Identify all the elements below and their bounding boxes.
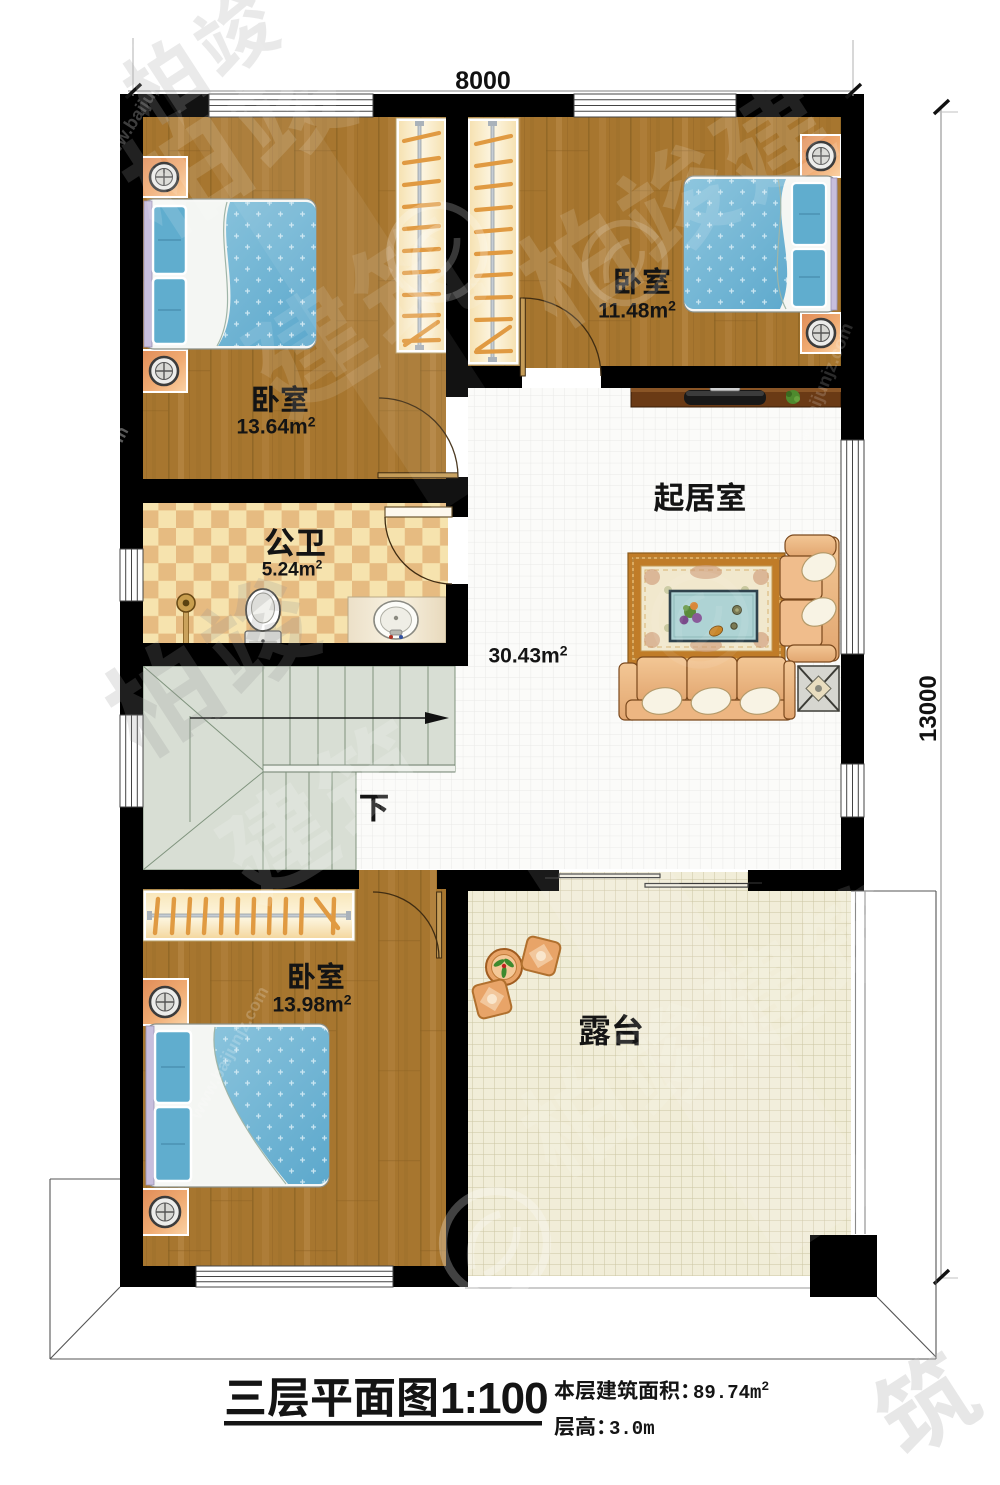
svg-text:13.98m2: 13.98m2 (272, 992, 351, 1017)
svg-text:13000: 13000 (915, 675, 942, 742)
svg-text:1:100: 1:100 (440, 1374, 548, 1423)
svg-text:5.24m2: 5.24m2 (262, 558, 323, 581)
svg-text:3.0m: 3.0m (609, 1418, 655, 1440)
svg-text:30.43m2: 30.43m2 (488, 643, 567, 668)
svg-text:8000: 8000 (455, 67, 511, 95)
svg-text:89.74m2: 89.74m2 (693, 1379, 769, 1404)
svg-text:13.64m2: 13.64m2 (236, 414, 315, 439)
